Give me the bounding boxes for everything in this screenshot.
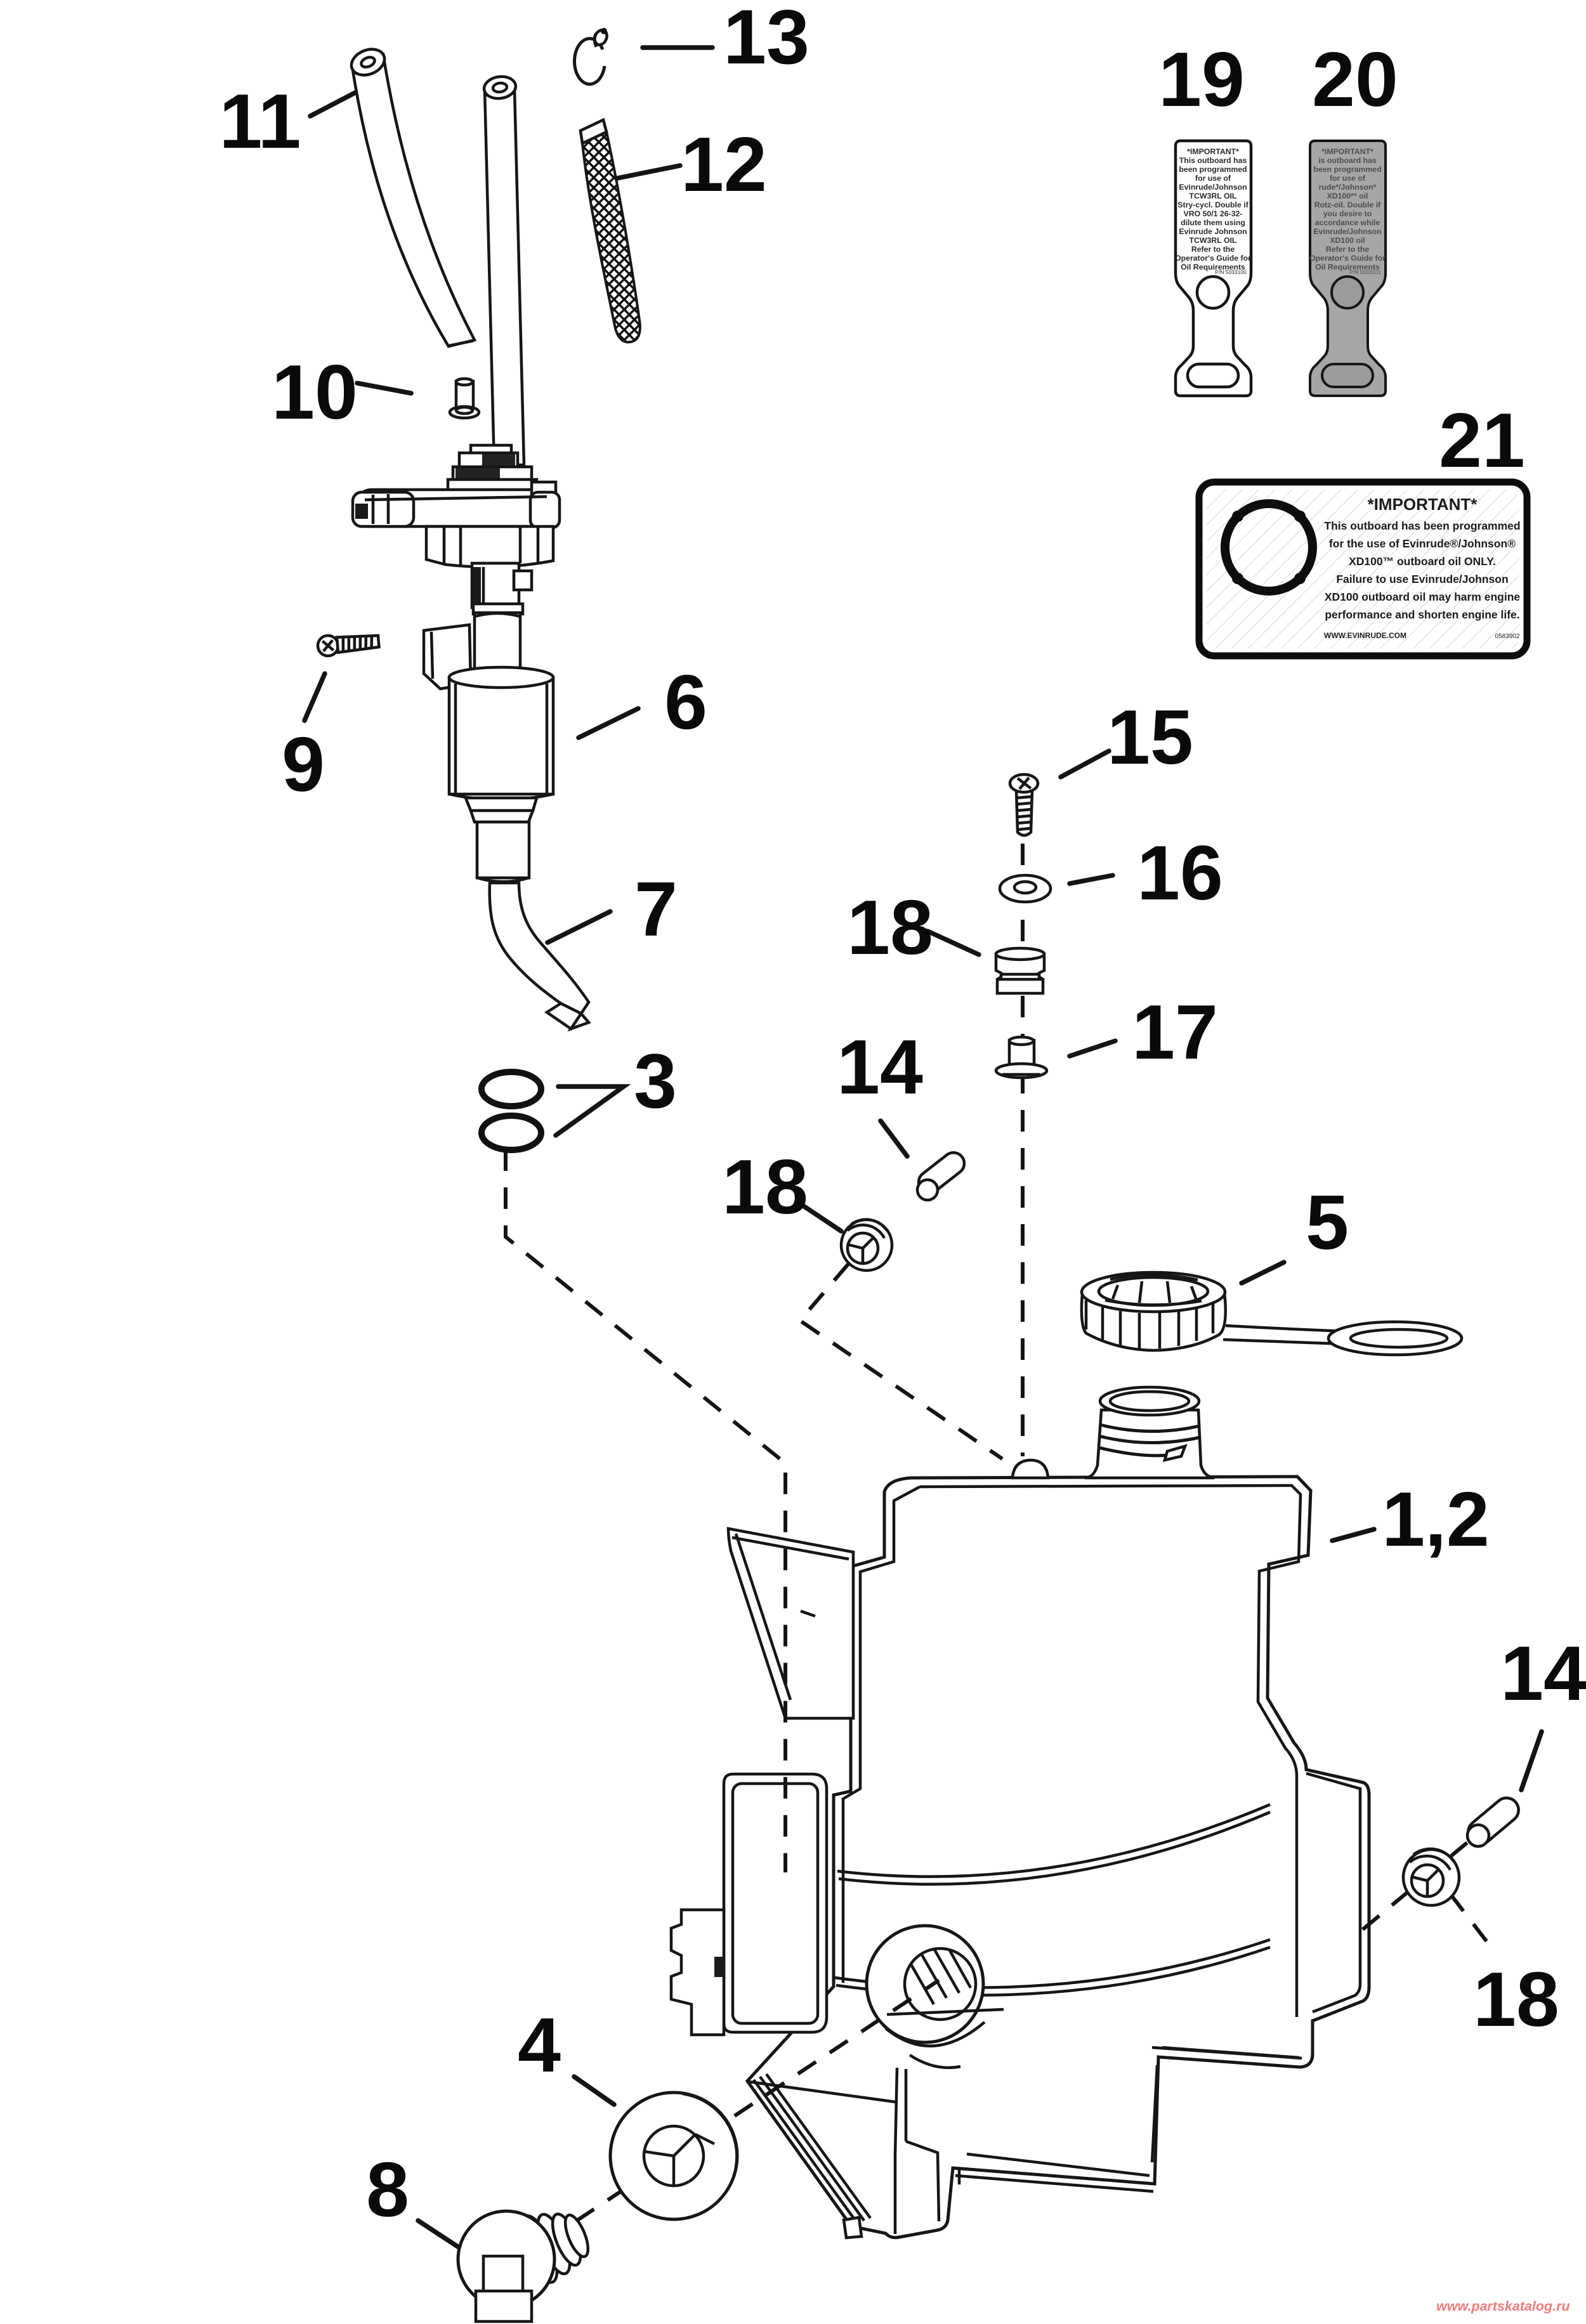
svg-text:21: 21 xyxy=(1439,397,1525,483)
svg-text:Evinrude/Johnson: Evinrude/Johnson xyxy=(1313,227,1381,236)
svg-text:accordance while: accordance while xyxy=(1315,218,1380,227)
svg-text:performance and shorten engine: performance and shorten engine life. xyxy=(1325,608,1519,621)
svg-text:XD100™ outboard oil ONLY.: XD100™ outboard oil ONLY. xyxy=(1349,555,1496,568)
svg-text:10: 10 xyxy=(272,349,358,435)
svg-text:been programmed: been programmed xyxy=(1179,165,1247,174)
svg-text:TCW3RL OIL: TCW3RL OIL xyxy=(1189,236,1237,245)
svg-text:Evinrude Johnson: Evinrude Johnson xyxy=(1179,227,1247,236)
svg-text:you desire to: you desire to xyxy=(1323,209,1372,218)
svg-text:3: 3 xyxy=(634,1038,677,1124)
svg-text:This outboard has been program: This outboard has been programmed xyxy=(1324,519,1520,532)
svg-text:19: 19 xyxy=(1158,36,1245,122)
svg-text:www.partskatalog.ru: www.partskatalog.ru xyxy=(1436,2299,1570,2314)
svg-text:15: 15 xyxy=(1107,694,1193,780)
svg-text:*IMPORTANT*: *IMPORTANT* xyxy=(1187,147,1239,156)
svg-text:16: 16 xyxy=(1137,830,1223,916)
svg-text:6: 6 xyxy=(664,659,707,745)
svg-text:rude*/Johnson*: rude*/Johnson* xyxy=(1319,183,1377,192)
svg-text:18: 18 xyxy=(722,1144,808,1230)
svg-text:for the use of Evinrude®/Johns: for the use of Evinrude®/Johnson® xyxy=(1329,537,1516,550)
svg-text:Operator's Guide for: Operator's Guide for xyxy=(1309,254,1386,263)
svg-text:0583902: 0583902 xyxy=(1495,633,1520,640)
svg-text:14: 14 xyxy=(1500,1630,1586,1716)
svg-text:Evinrude/Johnson: Evinrude/Johnson xyxy=(1179,183,1247,192)
svg-text:14: 14 xyxy=(837,1024,923,1110)
svg-text:is outboard has: is outboard has xyxy=(1318,156,1377,165)
svg-text:Refer to the: Refer to the xyxy=(1326,245,1369,254)
svg-text:*IMPORTANT*: *IMPORTANT* xyxy=(1368,495,1478,514)
svg-text:11: 11 xyxy=(220,78,301,164)
svg-text:17: 17 xyxy=(1132,989,1218,1075)
svg-text:This outboard has: This outboard has xyxy=(1179,156,1247,165)
svg-text:P/N 5033100: P/N 5033100 xyxy=(1215,269,1247,275)
svg-text:P/N 5033101: P/N 5033101 xyxy=(1349,269,1381,275)
svg-text:been programmed: been programmed xyxy=(1313,165,1381,174)
svg-text:5: 5 xyxy=(1306,1179,1349,1265)
svg-text:18: 18 xyxy=(1473,1956,1559,2042)
svg-text:8: 8 xyxy=(366,2146,409,2233)
svg-text:7: 7 xyxy=(634,866,678,952)
svg-text:WWW.EVINRUDE.COM: WWW.EVINRUDE.COM xyxy=(1324,631,1406,640)
svg-text:4: 4 xyxy=(518,2002,561,2088)
svg-text:13: 13 xyxy=(723,0,809,80)
svg-text:Stry-cycl. Double if: Stry-cycl. Double if xyxy=(1177,200,1248,209)
svg-text:Operator's Guide for: Operator's Guide for xyxy=(1175,254,1251,263)
svg-text:1,2: 1,2 xyxy=(1382,1476,1490,1562)
svg-text:XD100 oil: XD100 oil xyxy=(1330,236,1365,245)
svg-text:XD100** oil: XD100** oil xyxy=(1327,192,1368,200)
svg-text:for use of: for use of xyxy=(1330,174,1366,183)
svg-text:for use of: for use of xyxy=(1195,174,1231,183)
svg-text:*IMPORTANT*: *IMPORTANT* xyxy=(1321,147,1373,156)
svg-text:9: 9 xyxy=(282,721,325,807)
svg-text:Rotz-oil. Double if: Rotz-oil. Double if xyxy=(1314,200,1381,209)
svg-text:XD100 outboard oil may harm en: XD100 outboard oil may harm engine xyxy=(1325,591,1521,603)
svg-text:VRO 50/1 26-32-: VRO 50/1 26-32- xyxy=(1184,209,1243,218)
svg-text:12: 12 xyxy=(681,121,767,207)
svg-text:TCW3RL OIL: TCW3RL OIL xyxy=(1189,192,1237,200)
svg-text:Failure to use Evinrude/Johnso: Failure to use Evinrude/Johnson xyxy=(1336,573,1508,585)
svg-text:dilute them using: dilute them using xyxy=(1181,218,1245,227)
svg-text:Refer to the: Refer to the xyxy=(1191,245,1235,254)
svg-text:18: 18 xyxy=(847,884,933,970)
svg-text:20: 20 xyxy=(1312,36,1398,122)
